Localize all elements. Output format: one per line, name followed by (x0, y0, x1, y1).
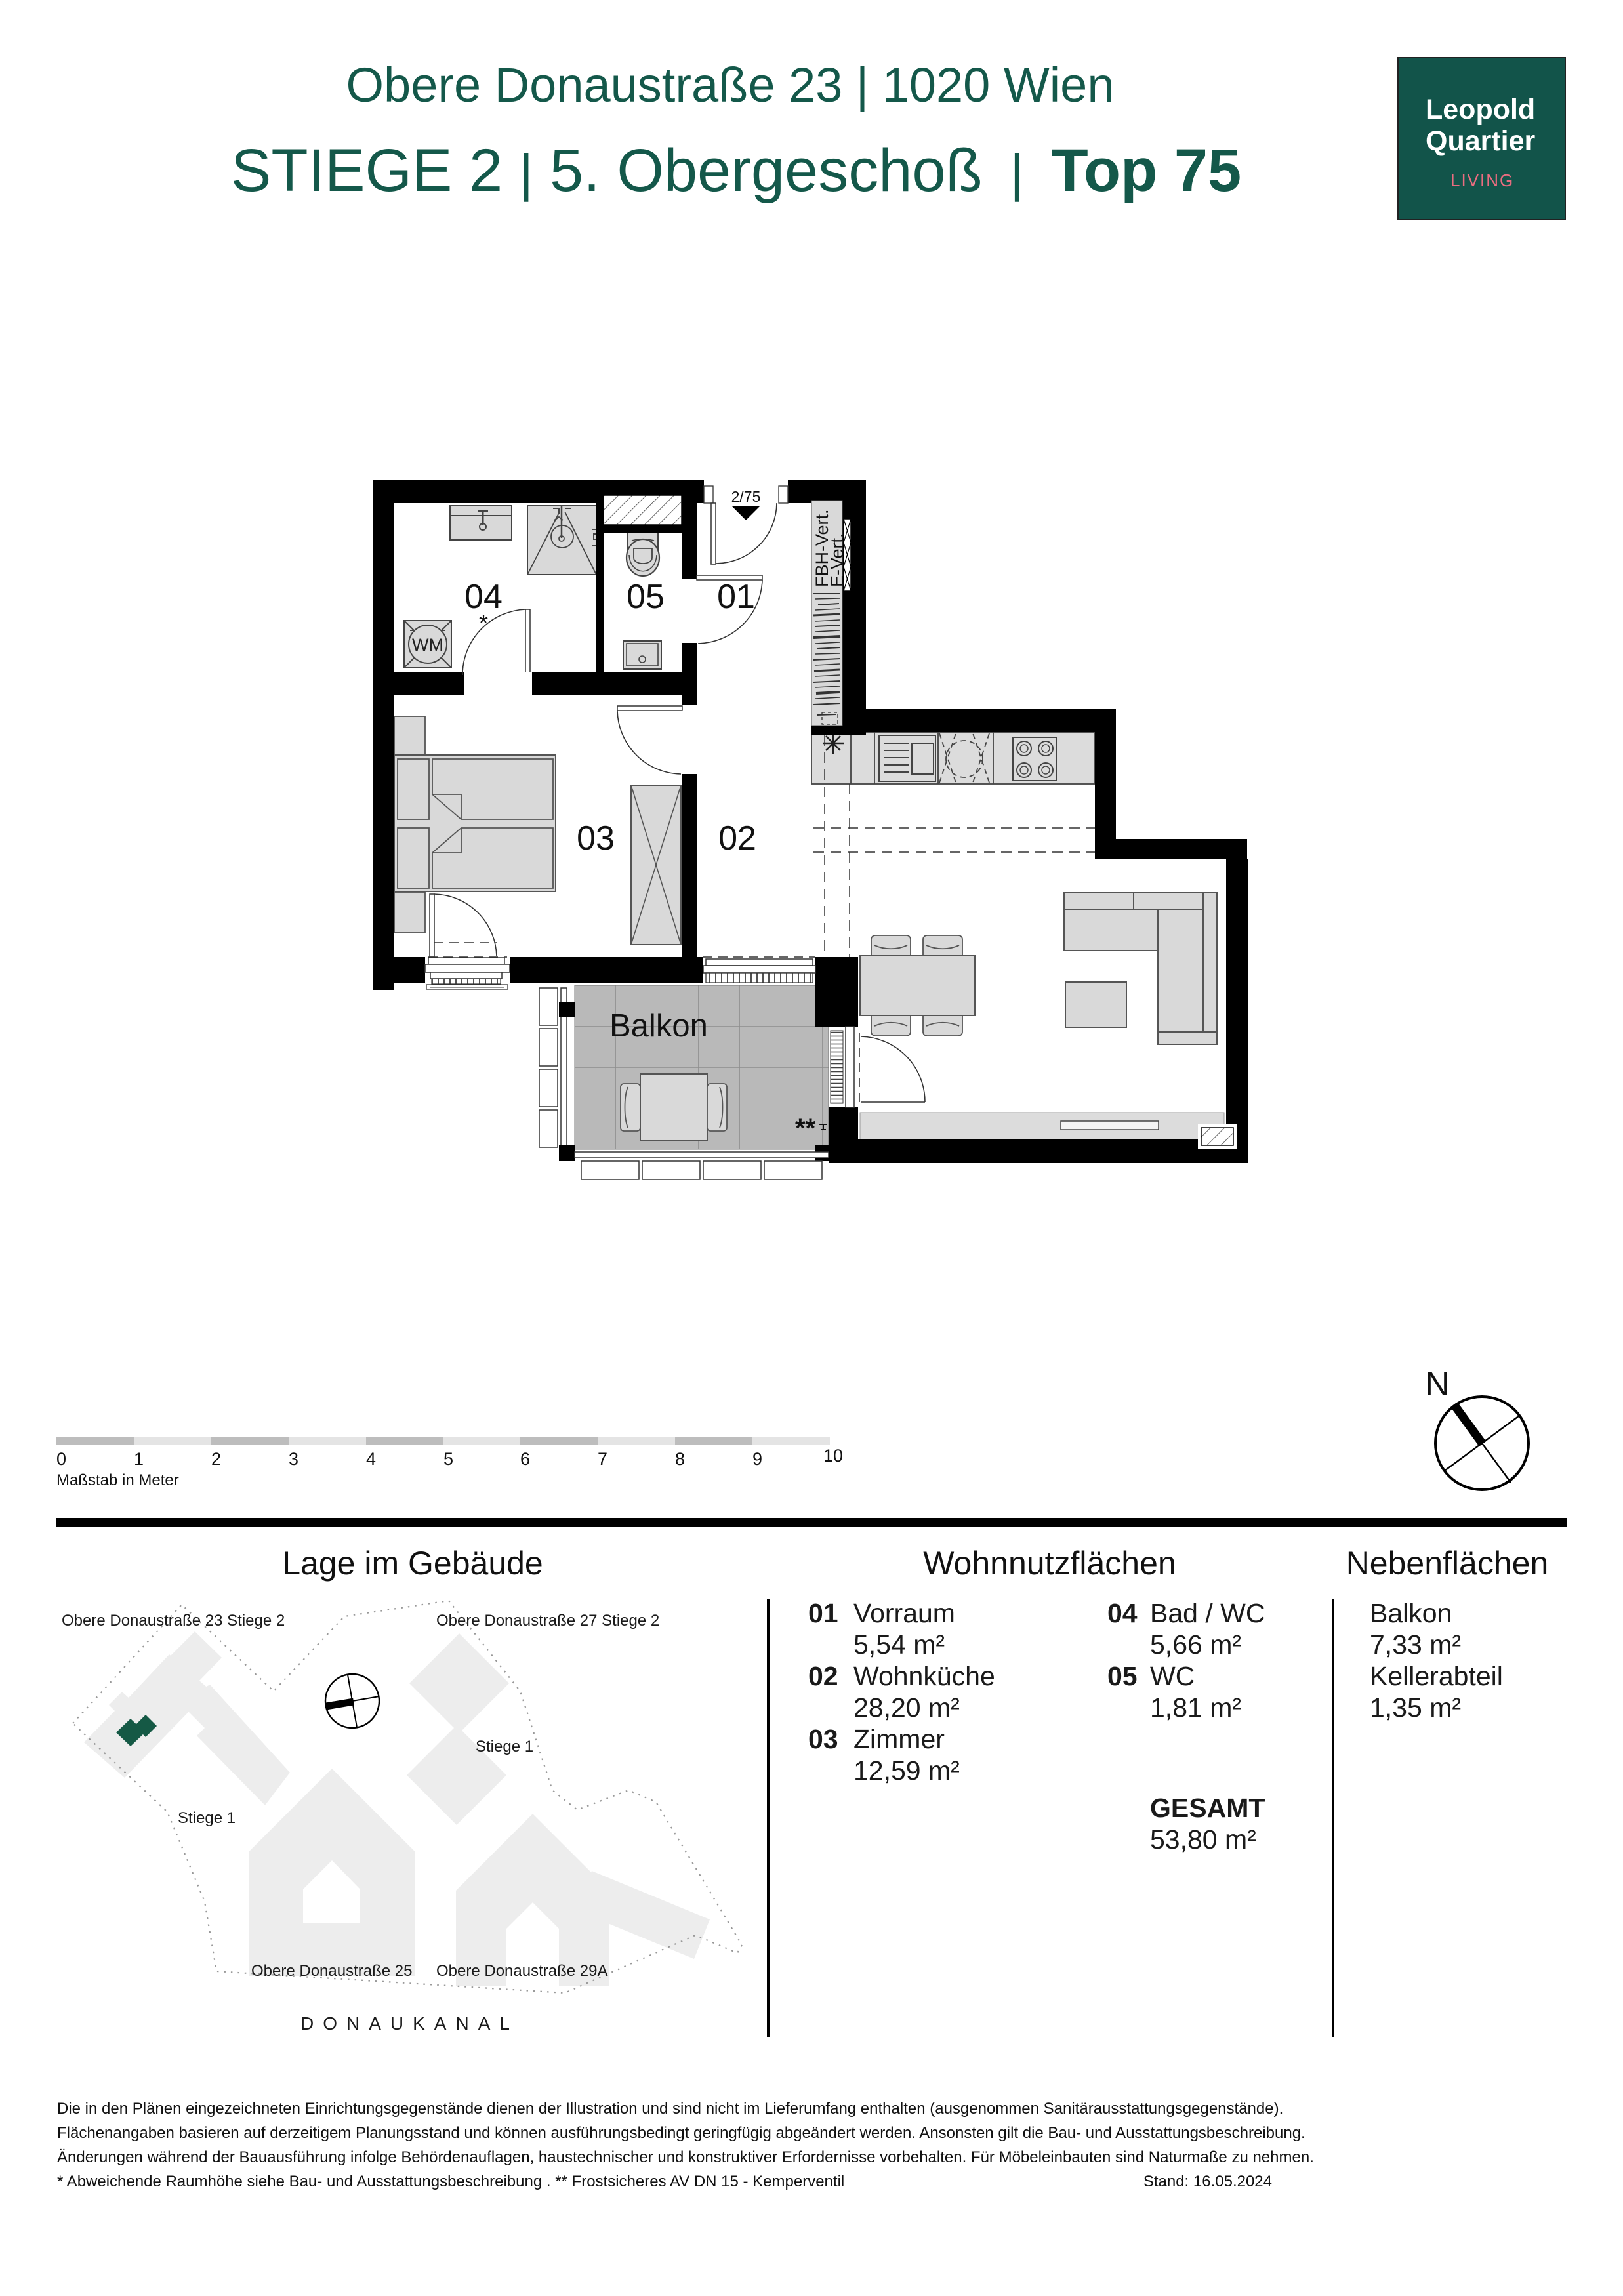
svg-text:Obere Donaustraße 23 Stiege 2: Obere Donaustraße 23 Stiege 2 (62, 1612, 285, 1630)
svg-text:5,54 m²: 5,54 m² (853, 1630, 945, 1660)
svg-text:03: 03 (577, 819, 615, 857)
svg-text:Quartier: Quartier (1426, 125, 1536, 157)
svg-text:Wohnnutzflächen: Wohnnutzflächen (923, 1545, 1176, 1582)
svg-text:DONAUKANAL: DONAUKANAL (300, 2013, 519, 2034)
svg-text:Obere Donaustraße 23 | 1020 Wi: Obere Donaustraße 23 | 1020 Wien (346, 58, 1115, 112)
svg-text:05: 05 (627, 578, 665, 616)
svg-text:**: ** (795, 1114, 816, 1143)
svg-text:6: 6 (520, 1449, 530, 1469)
svg-text:Stiege 1: Stiege 1 (476, 1738, 533, 1755)
svg-text:Nebenflächen: Nebenflächen (1346, 1545, 1549, 1582)
svg-text:02: 02 (808, 1661, 838, 1691)
svg-text:4: 4 (366, 1449, 376, 1469)
svg-text:8: 8 (675, 1449, 685, 1469)
svg-text:5,66 m²: 5,66 m² (1150, 1630, 1241, 1660)
svg-text:Obere Donaustraße 27 Stiege 2: Obere Donaustraße 27 Stiege 2 (436, 1612, 659, 1630)
svg-text:Stand: 16.05.2024: Stand: 16.05.2024 (1143, 2173, 1272, 2190)
svg-text:Lage im Gebäude: Lage im Gebäude (282, 1545, 543, 1582)
svg-text:10: 10 (823, 1446, 843, 1466)
svg-text:Leopold: Leopold (1426, 94, 1535, 125)
svg-text:Kellerabteil: Kellerabteil (1370, 1661, 1503, 1691)
svg-text:WM: WM (412, 635, 443, 655)
svg-text:1: 1 (134, 1449, 144, 1469)
svg-text:STIEGE 2 | 5. Obergeschoß|Top: STIEGE 2 | 5. Obergeschoß|Top 75 (231, 137, 1241, 204)
svg-text:1,35 m²: 1,35 m² (1370, 1692, 1461, 1723)
svg-text:Bad / WC: Bad / WC (1150, 1598, 1265, 1628)
svg-text:*: * (479, 609, 488, 636)
svg-text:Die in den Plänen eingezeichne: Die in den Plänen eingezeichneten Einric… (57, 2100, 1283, 2118)
svg-text:Wohnküche: Wohnküche (853, 1661, 995, 1691)
svg-text:N: N (1425, 1365, 1450, 1403)
svg-text:04: 04 (1107, 1598, 1138, 1628)
svg-text:Obere Donaustraße 25: Obere Donaustraße 25 (251, 1962, 412, 1980)
svg-text:5: 5 (443, 1449, 453, 1469)
svg-text:01: 01 (717, 578, 755, 616)
svg-text:Maßstab in Meter: Maßstab in Meter (56, 1471, 179, 1489)
svg-text:02: 02 (718, 819, 756, 857)
svg-text:* Abweichende Raumhöhe siehe B: * Abweichende Raumhöhe siehe Bau- und Au… (57, 2173, 844, 2190)
svg-text:GESAMT: GESAMT (1150, 1793, 1265, 1823)
svg-text:7,33 m²: 7,33 m² (1370, 1630, 1461, 1660)
svg-text:7: 7 (598, 1449, 607, 1469)
svg-text:WC: WC (1150, 1661, 1195, 1691)
svg-text:Obere Donaustraße 29A: Obere Donaustraße 29A (436, 1962, 607, 1980)
svg-text:03: 03 (808, 1724, 838, 1754)
svg-text:Flächenangaben basieren auf de: Flächenangaben basieren auf derzeitigem … (57, 2124, 1305, 2142)
svg-text:12,59 m²: 12,59 m² (853, 1755, 960, 1786)
svg-text:1,81 m²: 1,81 m² (1150, 1692, 1241, 1723)
svg-text:Balkon: Balkon (1370, 1598, 1452, 1628)
svg-text:2: 2 (211, 1449, 221, 1469)
svg-text:9: 9 (752, 1449, 762, 1469)
svg-text:0: 0 (56, 1449, 66, 1469)
svg-text:Vorraum: Vorraum (853, 1598, 955, 1628)
svg-text:Stiege 1: Stiege 1 (178, 1809, 236, 1827)
svg-text:Änderungen während der Bauausf: Änderungen während der Bauausführung inf… (57, 2148, 1314, 2166)
svg-text:01: 01 (808, 1598, 838, 1628)
svg-text:Balkon: Balkon (609, 1008, 708, 1044)
svg-text:2/75: 2/75 (731, 488, 761, 505)
svg-text:53,80 m²: 53,80 m² (1150, 1824, 1256, 1855)
svg-text:Zimmer: Zimmer (853, 1724, 945, 1754)
svg-text:LIVING: LIVING (1450, 171, 1514, 190)
svg-text:28,20 m²: 28,20 m² (853, 1692, 960, 1723)
svg-text:3: 3 (289, 1449, 298, 1469)
svg-text:05: 05 (1107, 1661, 1138, 1691)
